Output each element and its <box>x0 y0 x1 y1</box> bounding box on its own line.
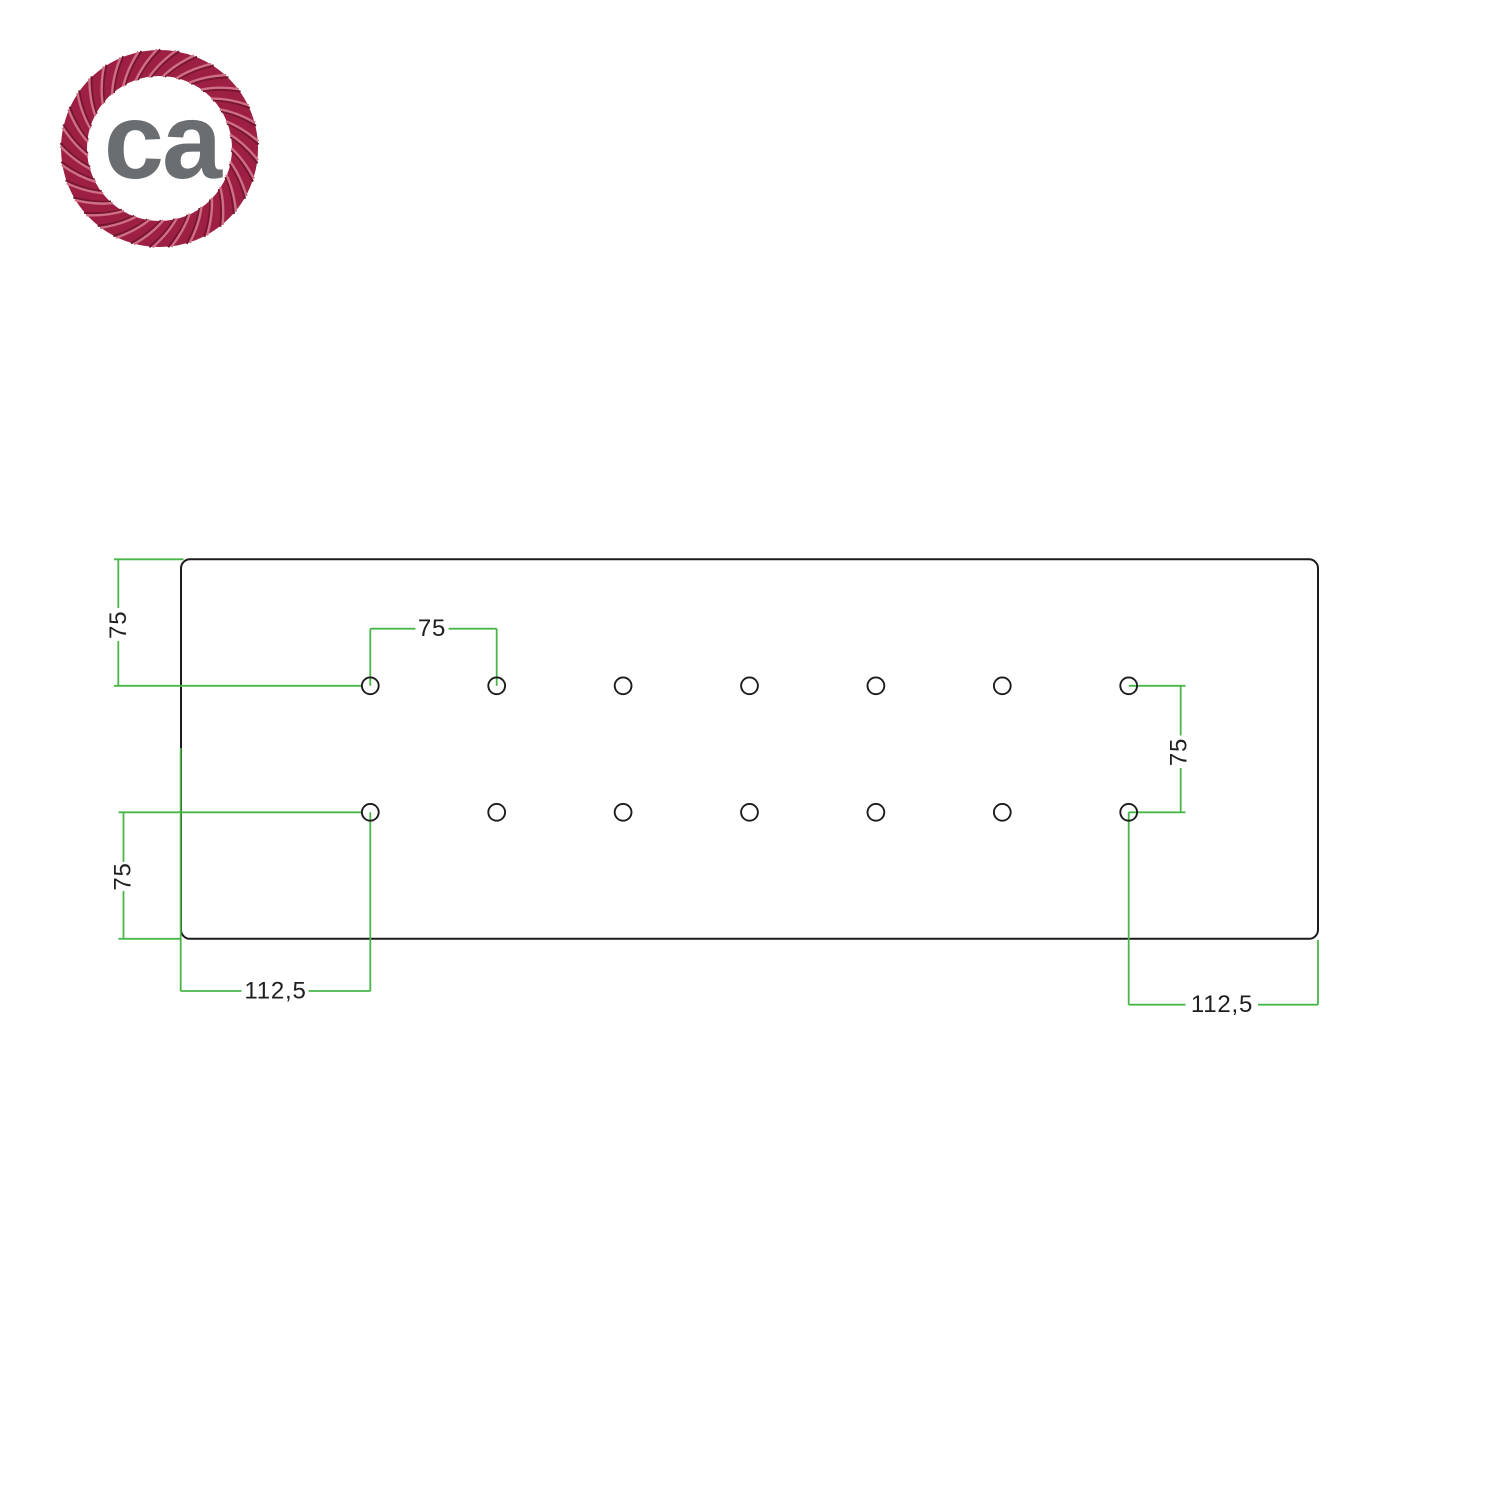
svg-text:112,5: 112,5 <box>1191 991 1253 1018</box>
svg-text:75: 75 <box>105 611 132 639</box>
svg-text:ca: ca <box>104 80 223 201</box>
svg-text:75: 75 <box>418 615 446 642</box>
svg-text:112,5: 112,5 <box>244 978 306 1005</box>
svg-text:75: 75 <box>110 862 137 890</box>
svg-text:75: 75 <box>1166 738 1193 766</box>
